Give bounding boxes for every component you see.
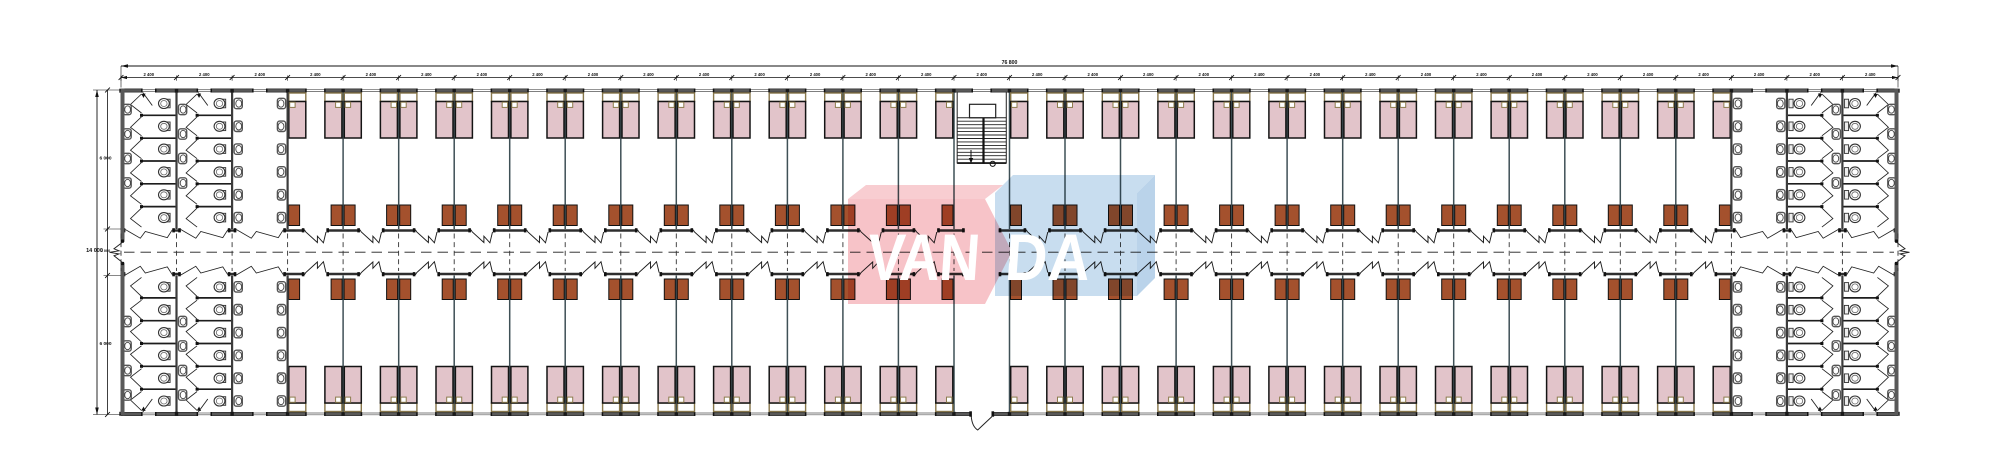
svg-text:2 400: 2 400	[1199, 72, 1210, 77]
svg-text:2 400: 2 400	[1643, 72, 1654, 77]
svg-text:2 400: 2 400	[1587, 72, 1598, 77]
svg-text:2 400: 2 400	[1310, 72, 1321, 77]
svg-text:2 400: 2 400	[255, 72, 266, 77]
svg-text:2 400: 2 400	[1532, 72, 1543, 77]
svg-text:2 400: 2 400	[921, 72, 932, 77]
svg-text:2 400: 2 400	[588, 72, 599, 77]
svg-text:2 400: 2 400	[1421, 72, 1432, 77]
svg-text:VAN: VAN	[865, 220, 982, 294]
svg-text:2 400: 2 400	[976, 72, 987, 77]
svg-text:2 400: 2 400	[477, 72, 488, 77]
svg-text:2 400: 2 400	[421, 72, 432, 77]
svg-text:2 400: 2 400	[1032, 72, 1043, 77]
svg-text:2 400: 2 400	[643, 72, 654, 77]
svg-text:2 400: 2 400	[1254, 72, 1265, 77]
svg-text:2 400: 2 400	[532, 72, 543, 77]
svg-text:2 400: 2 400	[1809, 72, 1820, 77]
svg-text:2 400: 2 400	[1698, 72, 1709, 77]
svg-text:6 000: 6 000	[99, 341, 111, 347]
svg-text:2 400: 2 400	[199, 72, 210, 77]
svg-text:2 400: 2 400	[144, 72, 155, 77]
svg-text:2 400: 2 400	[865, 72, 876, 77]
svg-text:2 400: 2 400	[699, 72, 710, 77]
svg-text:2 400: 2 400	[1143, 72, 1154, 77]
svg-text:2 400: 2 400	[1754, 72, 1765, 77]
svg-text:2 400: 2 400	[754, 72, 765, 77]
svg-text:76 800: 76 800	[1002, 60, 1018, 66]
svg-text:2 000: 2 000	[101, 249, 111, 253]
svg-text:2 400: 2 400	[1088, 72, 1099, 77]
svg-text:2 400: 2 400	[366, 72, 377, 77]
svg-text:2 400: 2 400	[1865, 72, 1876, 77]
svg-text:2 400: 2 400	[310, 72, 321, 77]
svg-text:6 000: 6 000	[99, 156, 111, 162]
svg-text:DA: DA	[1003, 222, 1094, 295]
svg-text:2 400: 2 400	[1476, 72, 1487, 77]
svg-text:2 400: 2 400	[810, 72, 821, 77]
svg-text:2 400: 2 400	[1365, 72, 1376, 77]
